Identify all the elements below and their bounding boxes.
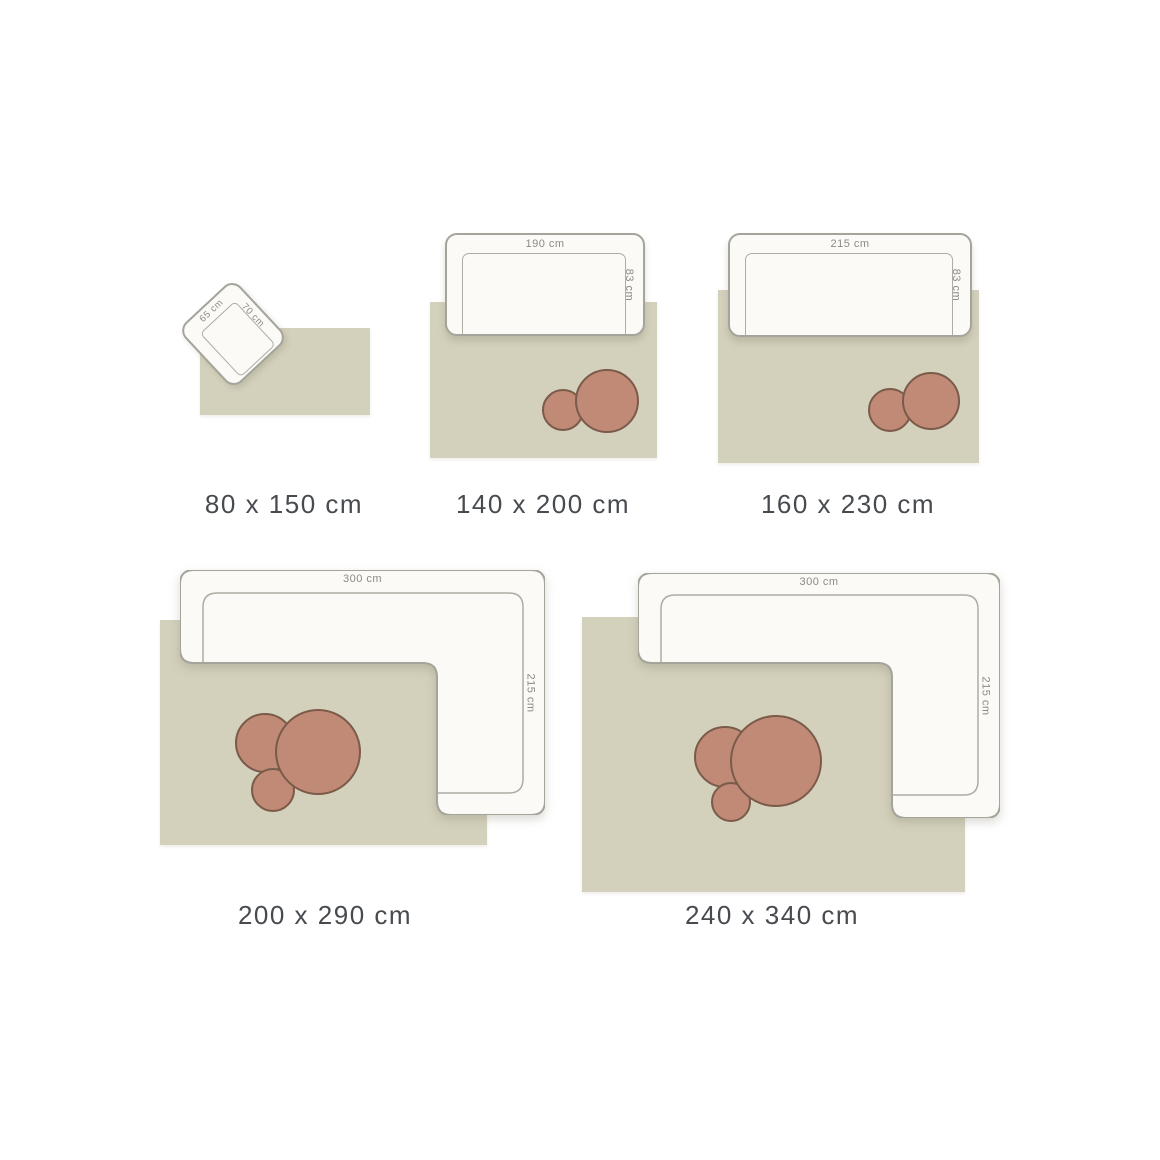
rug-size-guide: 65 cm 70 cm 80 x 150 cm 190 cm 83 cm 140… [0, 0, 1160, 1160]
sofa-width-label: 300 cm [180, 573, 545, 585]
coffee-table-large [902, 372, 960, 430]
rug-size-label: 140 x 200 cm [456, 489, 630, 520]
sofa-shape: 215 cm 83 cm [728, 233, 972, 337]
corner-sofa-outline [638, 573, 1000, 818]
corner-sofa-outline [180, 570, 545, 815]
rug-size-label: 160 x 230 cm [761, 489, 935, 520]
coffee-table-large [575, 369, 639, 433]
rug-size-label: 240 x 340 cm [685, 900, 859, 931]
rug-size-label: 80 x 150 cm [205, 489, 363, 520]
corner-sofa-drawing [638, 573, 1000, 818]
sofa-depth-label: 215 cm [980, 676, 992, 715]
sofa-seat [462, 253, 626, 334]
sofa-width-label: 300 cm [638, 576, 1000, 588]
sofa-width-label: 215 cm [730, 238, 970, 250]
coffee-table-large [275, 709, 361, 795]
rug-size-label: 200 x 290 cm [238, 900, 412, 931]
sofa-depth-label: 215 cm [525, 673, 537, 712]
sofa-seat [745, 253, 953, 335]
sofa-shape: 190 cm 83 cm [445, 233, 645, 336]
coffee-table-large [730, 715, 822, 807]
corner-sofa-shape: 300 cm 215 cm [638, 573, 1000, 818]
corner-sofa-shape: 300 cm 215 cm [180, 570, 545, 815]
corner-sofa-drawing [180, 570, 545, 815]
sofa-width-label: 190 cm [447, 238, 643, 250]
